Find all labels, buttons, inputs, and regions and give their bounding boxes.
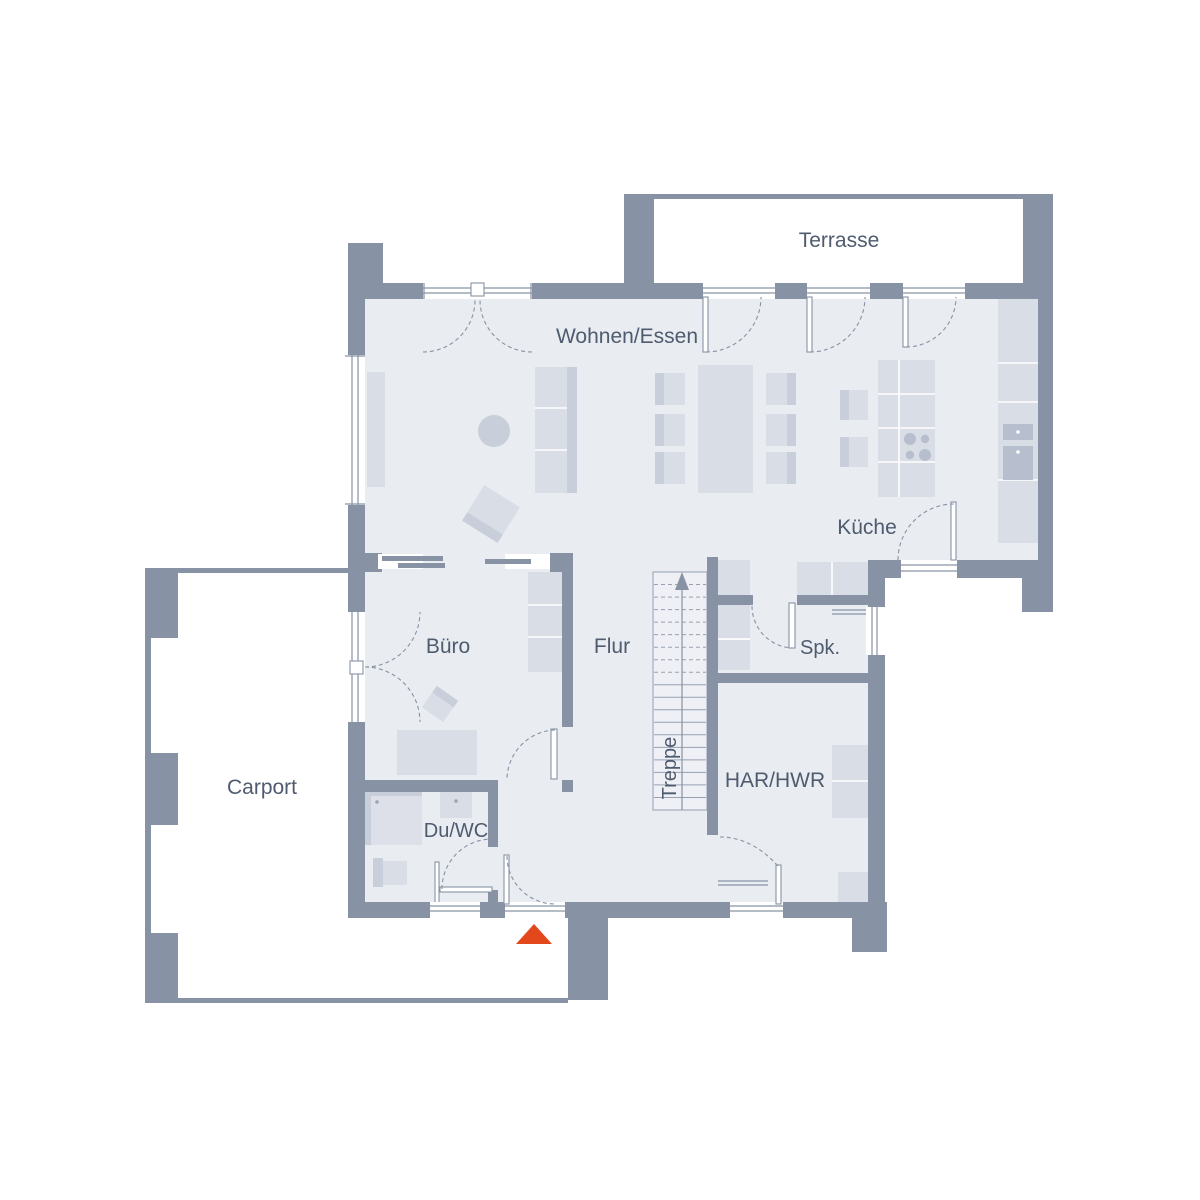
dining-table xyxy=(698,365,753,493)
office-bookshelf xyxy=(528,572,562,672)
door-handle-icon xyxy=(350,661,363,674)
label-buero: Büro xyxy=(426,635,470,658)
entrance-arrow-icon xyxy=(516,924,552,944)
label-spk: Spk. xyxy=(800,637,840,659)
floor-plan-page: Terrasse Wohnen/Essen Küche Büro Flur Sp… xyxy=(0,0,1200,1200)
kitchen-counter-east xyxy=(998,296,1038,543)
kitchen-counter-south-left xyxy=(718,560,750,597)
label-terrasse: Terrasse xyxy=(799,229,880,252)
label-du-wc: Du/WC xyxy=(424,820,488,842)
terrace-wall-right xyxy=(1023,194,1053,283)
label-treppe: Treppe xyxy=(659,737,681,800)
sofa xyxy=(535,367,577,493)
label-wohnen-essen: Wohnen/Essen xyxy=(556,325,698,348)
coffee-table xyxy=(478,415,510,447)
bathroom-window xyxy=(430,902,480,918)
stair-wall xyxy=(707,557,718,835)
terrace-wall-left xyxy=(624,194,654,283)
label-carport: Carport xyxy=(227,776,297,799)
tv-sideboard xyxy=(367,372,385,487)
shower xyxy=(365,792,422,845)
terrace-edge xyxy=(624,194,1053,199)
floor-plan-drawing: Terrasse Wohnen/Essen Küche Büro Flur Sp… xyxy=(0,0,1200,1200)
toilet xyxy=(373,858,407,887)
pantry-window xyxy=(866,607,885,655)
label-har-hwr: HAR/HWR xyxy=(725,769,825,792)
office-desk xyxy=(397,730,477,775)
door-handle-icon xyxy=(471,283,484,296)
label-flur: Flur xyxy=(594,635,630,658)
living-window-west xyxy=(345,355,365,505)
washbasin xyxy=(440,792,472,818)
label-kueche: Küche xyxy=(837,516,897,539)
kitchen-counter-south-right xyxy=(797,562,868,597)
kitchen-island xyxy=(878,360,935,497)
